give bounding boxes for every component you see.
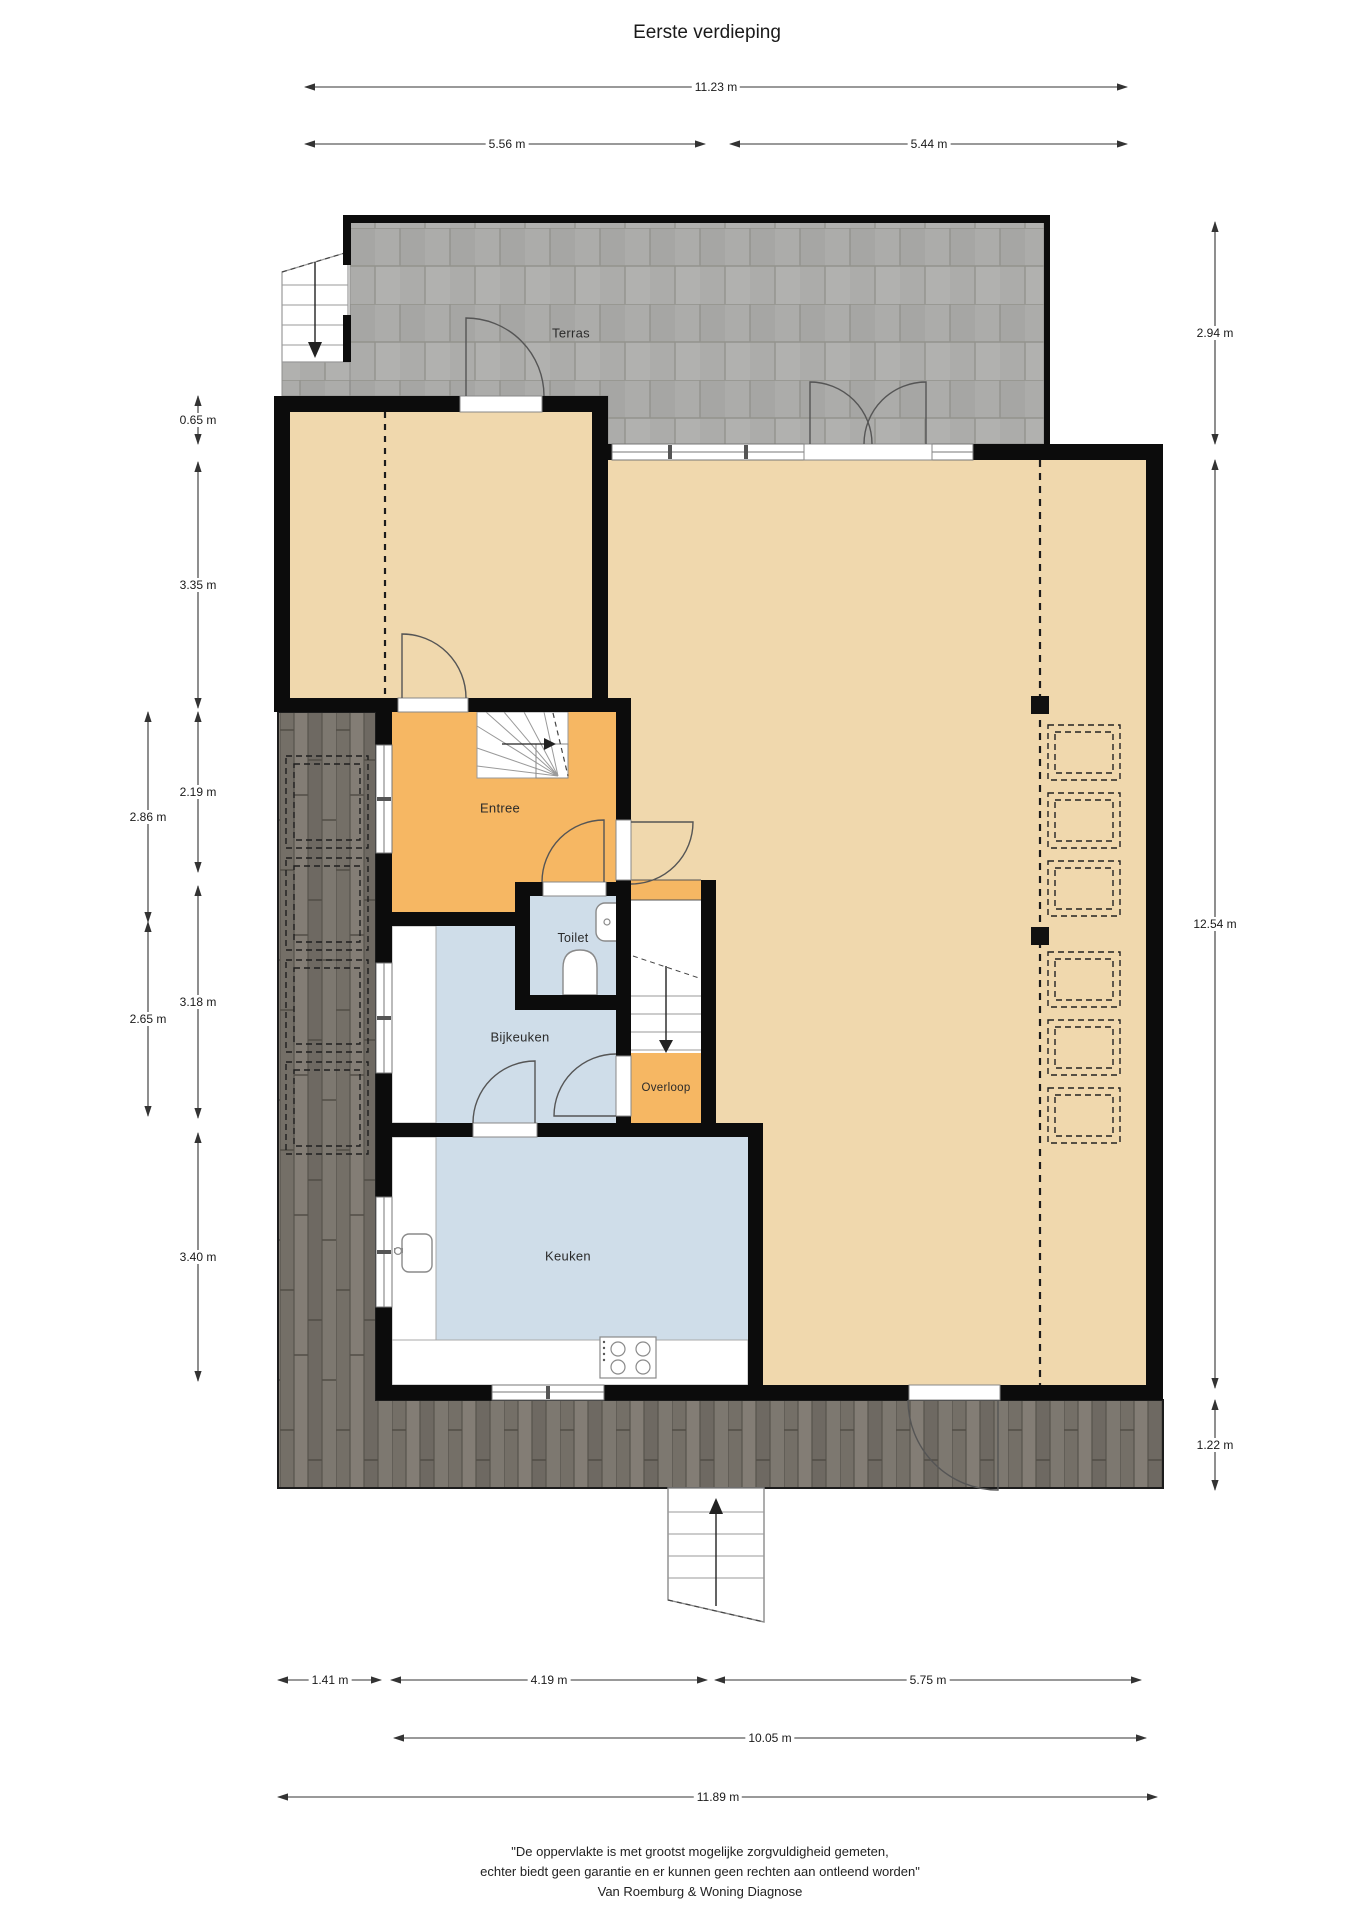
dim-label-left-outer-2: 2.65 m bbox=[127, 1012, 170, 1026]
dim-label-left-5: 3.40 m bbox=[177, 1250, 220, 1264]
dim-label-top-total: 11.23 m bbox=[692, 80, 740, 94]
toilet-bowl-icon bbox=[563, 950, 597, 995]
dim-label-right-2: 12.54 m bbox=[1190, 917, 1239, 931]
dim-label-bottom-2: 4.19 m bbox=[528, 1673, 571, 1687]
dim-label-left-3: 2.19 m bbox=[177, 785, 220, 799]
dim-label-right-1: 2.94 m bbox=[1194, 326, 1237, 340]
room-label-entree: Entree bbox=[480, 801, 520, 816]
room-topleft-fill bbox=[290, 412, 592, 698]
room-label-toilet: Toilet bbox=[558, 931, 589, 945]
entree-winder-stair bbox=[477, 712, 568, 778]
dim-label-bottom-3: 5.75 m bbox=[907, 1673, 950, 1687]
room-label-terras: Terras bbox=[552, 326, 590, 341]
disclaimer-line-2: echter biedt geen garantie en er kunnen … bbox=[300, 1862, 1100, 1882]
dim-label-left-2: 3.35 m bbox=[177, 578, 220, 592]
column-post bbox=[1031, 696, 1049, 714]
terrace-tile-patch bbox=[282, 362, 350, 396]
keuken-counter-bottom bbox=[392, 1340, 748, 1385]
disclaimer-line-3: Van Roemburg & Woning Diagnose bbox=[300, 1882, 1100, 1902]
disclaimer: "De oppervlakte is met grootst mogelijke… bbox=[300, 1842, 1100, 1902]
dim-label-bottom-1: 1.41 m bbox=[309, 1673, 352, 1687]
page-title: Eerste verdieping bbox=[633, 22, 781, 44]
external-stair-bottom bbox=[668, 1488, 764, 1622]
column-post bbox=[1031, 927, 1049, 945]
dim-label-left-4: 3.18 m bbox=[177, 995, 220, 1009]
disclaimer-line-1: "De oppervlakte is met grootst mogelijke… bbox=[300, 1842, 1100, 1862]
dim-label-right-3: 1.22 m bbox=[1194, 1438, 1237, 1452]
dim-label-left-outer-1: 2.86 m bbox=[127, 810, 170, 824]
dim-label-left-1: 0.65 m bbox=[177, 413, 220, 427]
dim-label-bottom-4: 10.05 m bbox=[745, 1731, 794, 1745]
dim-label-top-right: 5.44 m bbox=[908, 137, 951, 151]
room-label-keuken: Keuken bbox=[545, 1249, 591, 1264]
external-stair-top bbox=[282, 252, 348, 362]
floorplan-page: Eerste verdieping Terras Entree Toilet B… bbox=[0, 0, 1358, 1920]
room-label-bijkeuken: Bijkeuken bbox=[490, 1030, 549, 1045]
bijkeuken-counter bbox=[392, 926, 436, 1123]
room-label-overloop: Overloop bbox=[641, 1082, 690, 1094]
dim-label-top-left: 5.56 m bbox=[486, 137, 529, 151]
kitchen-sink-icon bbox=[402, 1234, 432, 1272]
floorplan-drawing bbox=[0, 0, 1358, 1920]
cooktop-icon bbox=[600, 1337, 656, 1378]
dim-label-bottom-5: 11.89 m bbox=[694, 1790, 742, 1804]
